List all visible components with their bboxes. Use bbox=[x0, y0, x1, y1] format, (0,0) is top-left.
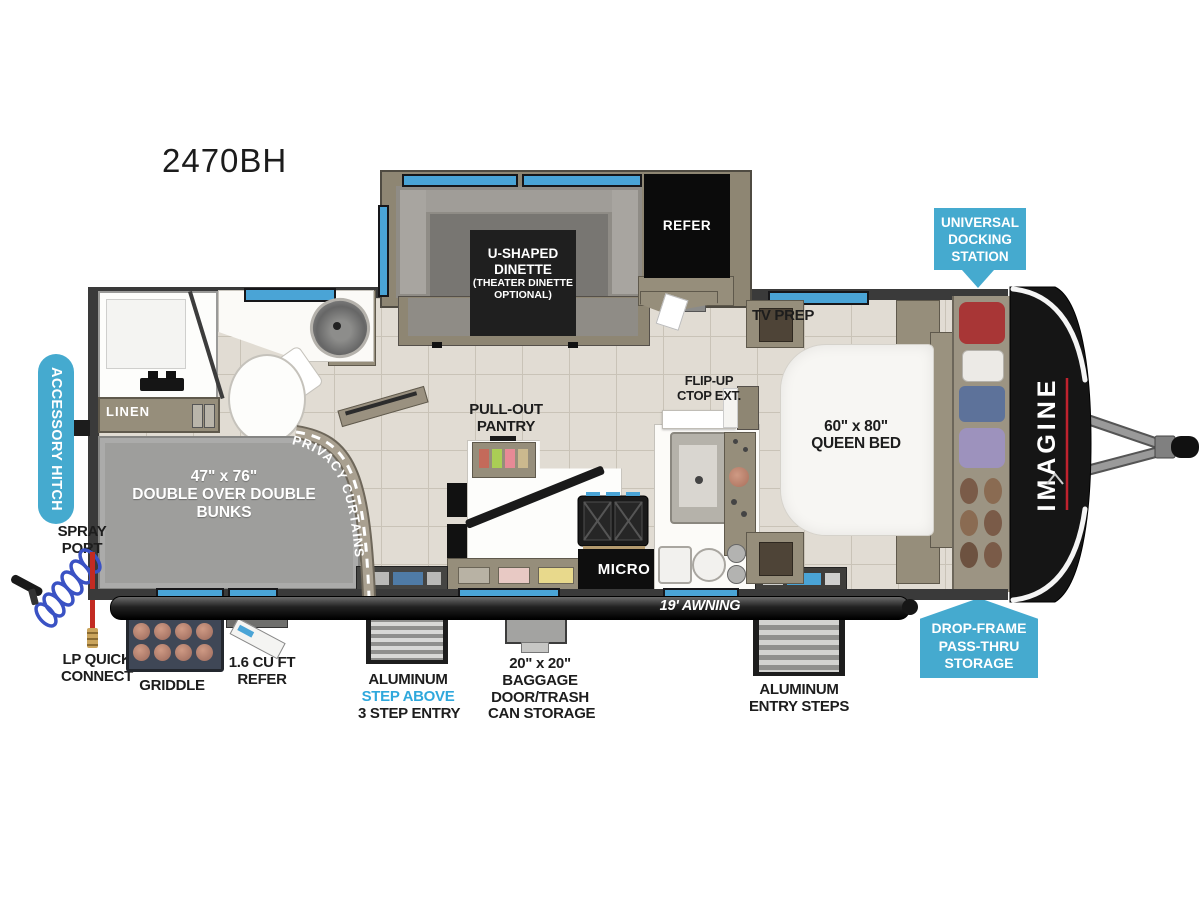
kitchen-basin-round bbox=[692, 548, 726, 582]
baggage-label: 20" x 20" BAGGAGE DOOR/TRASH CAN STORAGE bbox=[488, 656, 592, 723]
pantry-label: PULL-OUT PANTRY bbox=[454, 402, 558, 436]
dinette-foot bbox=[432, 342, 442, 348]
nightstand-bottom bbox=[746, 532, 804, 584]
slide-window-top-1 bbox=[402, 174, 518, 187]
accessory-hitch-text: ACCESSORY HITCH bbox=[48, 367, 64, 511]
lp-connector bbox=[87, 628, 98, 648]
slide-window-top-2 bbox=[522, 174, 642, 187]
pantry-handle bbox=[490, 436, 516, 441]
stove bbox=[576, 492, 652, 550]
shoes bbox=[984, 542, 1002, 568]
dinette-label: U-SHAPED DINETTE (THEATER DINETTE OPTION… bbox=[470, 230, 576, 336]
dinette-seat-right bbox=[612, 190, 638, 294]
step-entry-label: ALUMINUM STEP ABOVE 3 STEP ENTRY bbox=[358, 672, 458, 722]
svg-text:PRIVACY CURTAINS: PRIVACY CURTAINS bbox=[291, 432, 367, 558]
shoes bbox=[984, 478, 1002, 504]
queen-bed-label: 60" x 80" QUEEN BED bbox=[796, 418, 916, 453]
spray-nozzle bbox=[10, 573, 44, 597]
baggage-door-tab bbox=[521, 642, 549, 653]
tv-panel bbox=[447, 483, 467, 517]
tv-prep-label: TV PREP bbox=[752, 308, 814, 325]
clothes-red bbox=[959, 302, 1005, 344]
awning-label: 19' AWNING bbox=[638, 598, 762, 615]
accessory-hitch-badge: ACCESSORY HITCH bbox=[38, 354, 74, 524]
kitchen-knob bbox=[727, 544, 746, 563]
refer-box: REFER bbox=[644, 174, 730, 278]
spray-hose-coil bbox=[8, 545, 118, 655]
universal-docking-pointer bbox=[962, 270, 994, 288]
clothes-shirt bbox=[962, 350, 1004, 382]
clothes-lavender bbox=[959, 428, 1005, 468]
shoes bbox=[984, 510, 1002, 536]
kitchen-sink bbox=[670, 432, 728, 524]
floorplan-canvas: 2470BH U-SHAPED DINETTE (THEATER DINETTE… bbox=[0, 0, 1200, 900]
dinette-seat-left bbox=[400, 190, 426, 294]
shoes bbox=[960, 478, 978, 504]
pullout-pantry bbox=[472, 442, 536, 478]
clothes-jeans bbox=[959, 386, 1005, 422]
mini-refer-label: 1.6 CU FT REFER bbox=[212, 655, 312, 689]
page-title: 2470BH bbox=[162, 142, 287, 180]
shower-pan bbox=[106, 299, 186, 369]
linen-label: LINEN bbox=[106, 405, 150, 420]
front-wardrobe bbox=[952, 296, 1010, 592]
tv-panel bbox=[447, 524, 467, 560]
kitchen-knob bbox=[727, 565, 746, 584]
shoes bbox=[960, 510, 978, 536]
dinette-foot bbox=[568, 342, 578, 348]
griddle-label: GRIDDLE bbox=[126, 678, 218, 695]
awning-bar bbox=[110, 596, 910, 620]
linen-slot bbox=[192, 404, 203, 428]
entry-steps-label: ALUMINUM ENTRY STEPS bbox=[748, 682, 850, 716]
brand-imagine: IMAGINE bbox=[1033, 377, 1061, 512]
shower-knob bbox=[166, 371, 176, 379]
dinette-seat-back bbox=[400, 190, 638, 212]
awning-bar-endcap bbox=[902, 599, 918, 615]
shower-fixture bbox=[140, 378, 184, 391]
griddle bbox=[126, 616, 224, 672]
privacy-curtain: PRIVACY CURTAINS bbox=[250, 412, 410, 607]
bath-sink-drain bbox=[333, 322, 341, 330]
bath-window bbox=[244, 288, 336, 302]
universal-docking-badge: UNIVERSAL DOCKING STATION bbox=[934, 208, 1026, 270]
kitchen-basin-square bbox=[658, 546, 692, 584]
flip-up-label: FLIP-UP CTOP EXT. bbox=[664, 374, 754, 403]
shoes bbox=[960, 542, 978, 568]
shower-knob bbox=[148, 371, 158, 379]
front-cap: IMAGINE bbox=[1003, 278, 1200, 610]
slide-window-side bbox=[378, 205, 389, 297]
linen-slot bbox=[204, 404, 215, 428]
drop-frame-badge: DROP-FRAME PASS-THRU STORAGE bbox=[920, 598, 1038, 678]
